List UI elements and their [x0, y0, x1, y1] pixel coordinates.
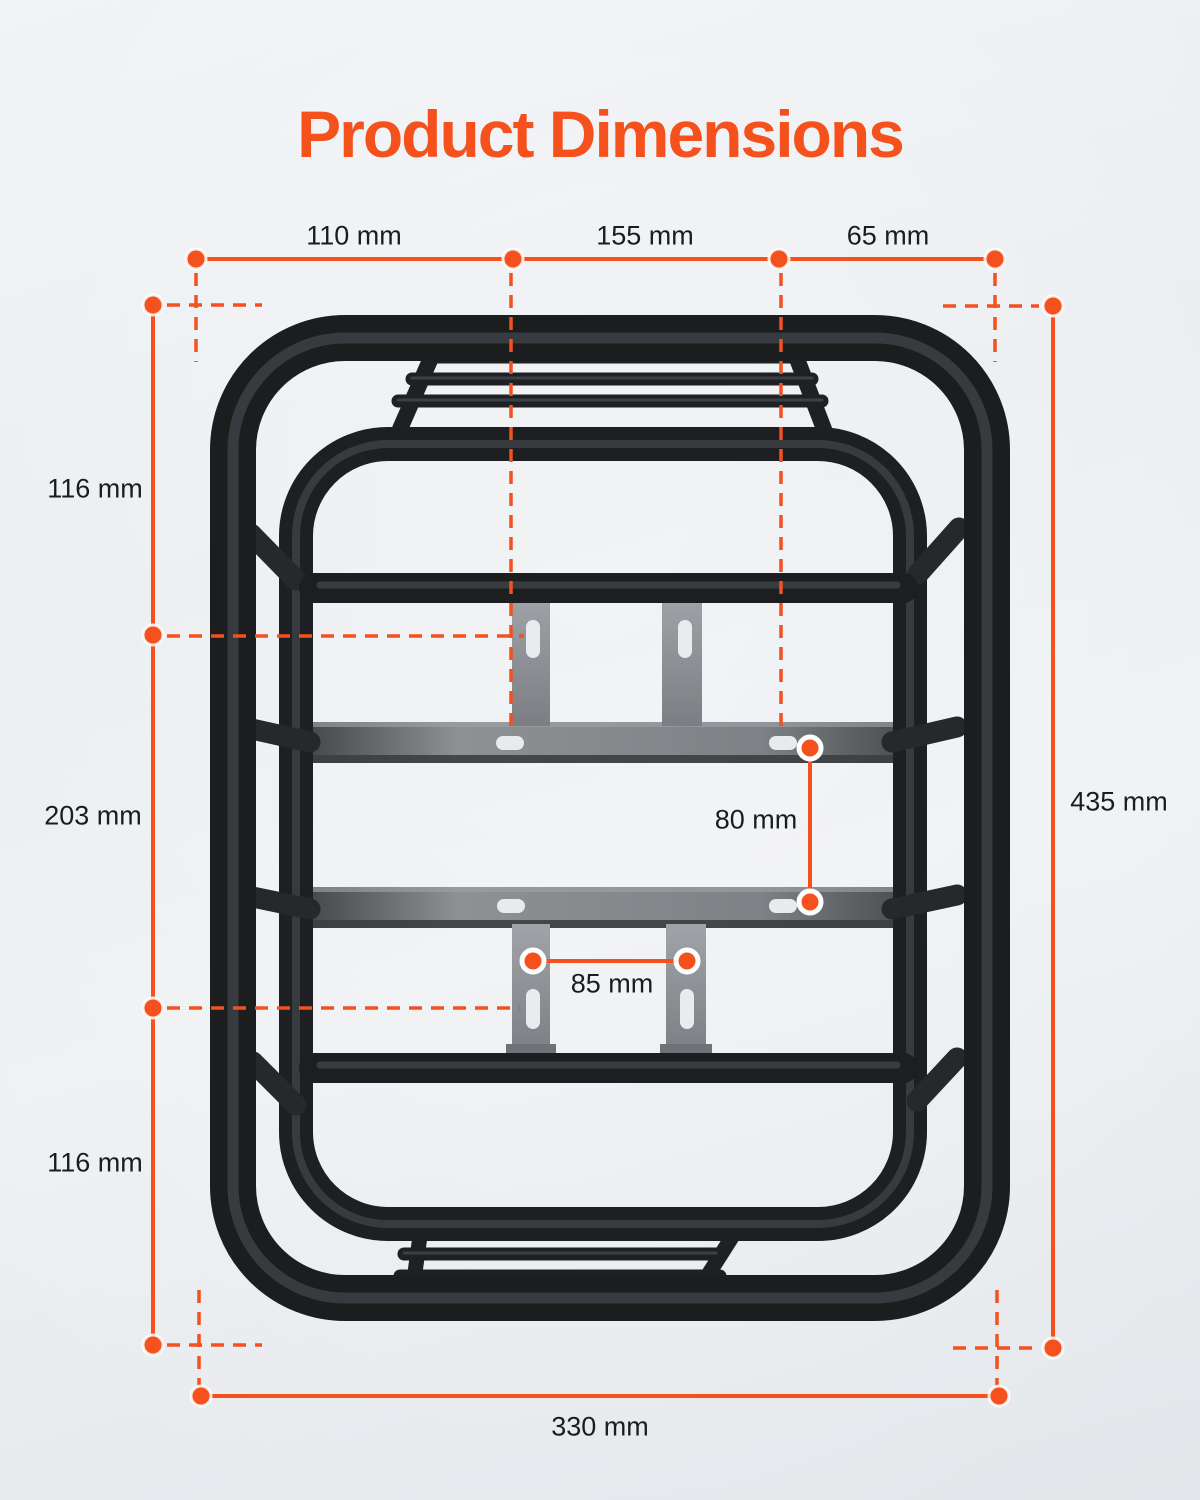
dim-label-right-height: 435 mm — [1070, 787, 1168, 818]
dim-label-top-right: 65 mm — [847, 221, 930, 252]
dim-label-left-bottom: 116 mm — [47, 1148, 143, 1179]
dim-label-top-middle: 155 mm — [596, 221, 694, 252]
mount-slot — [526, 989, 540, 1029]
dim-label-bottom-width: 330 mm — [551, 1412, 649, 1443]
mount-slot — [769, 736, 797, 750]
page-title: Product Dimensions — [0, 96, 1200, 172]
dim-label-slot-horizontal: 85 mm — [571, 969, 654, 1000]
product-dimensions-page: Product Dimensions 110 mm 155 mm 65 mm 1… — [0, 0, 1200, 1500]
mount-slot — [678, 620, 692, 658]
dim-label-left-middle: 203 mm — [44, 801, 142, 832]
mount-slot — [769, 899, 797, 913]
dim-label-top-left: 110 mm — [306, 221, 402, 252]
mount-slot — [496, 736, 524, 750]
mount-slot — [497, 899, 525, 913]
dim-label-left-top: 116 mm — [47, 474, 143, 505]
mount-slot — [680, 989, 694, 1029]
dim-label-slot-vertical: 80 mm — [715, 805, 798, 836]
upper-cross-tube — [314, 585, 903, 588]
mounting-crossbar-upper — [306, 722, 914, 763]
lower-cross-tube — [314, 1065, 903, 1068]
mount-slot — [526, 620, 540, 658]
mounting-crossbar-lower — [306, 887, 914, 928]
